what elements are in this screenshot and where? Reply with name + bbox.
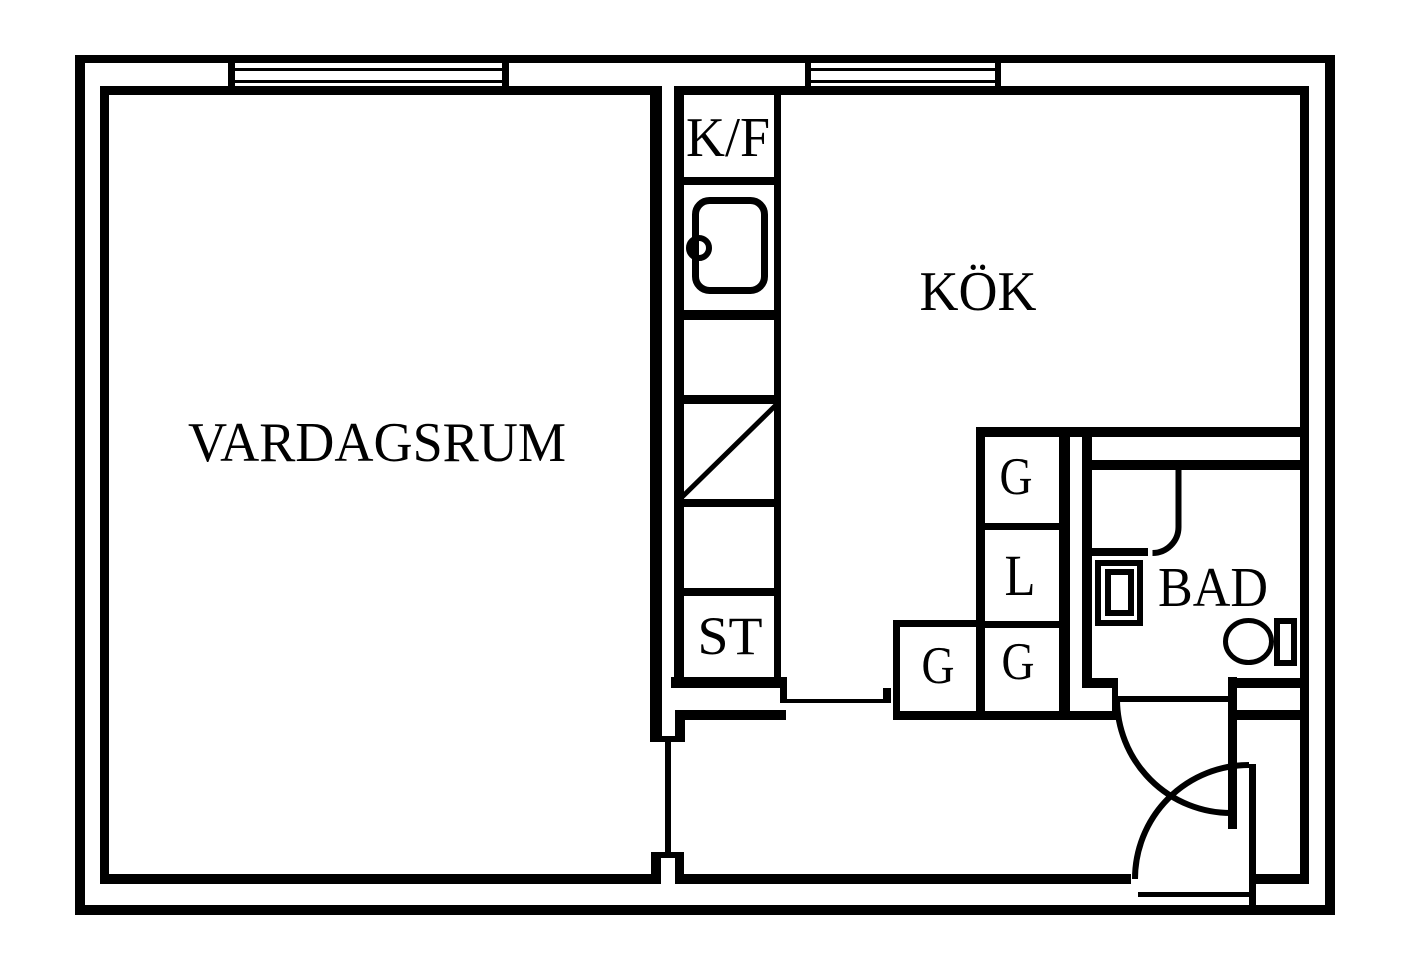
svg-text:G: G xyxy=(1002,633,1035,691)
svg-text:VARDAGSRUM: VARDAGSRUM xyxy=(188,412,566,474)
svg-text:L: L xyxy=(1005,543,1036,608)
svg-text:G: G xyxy=(1000,448,1033,506)
svg-text:KÖK: KÖK xyxy=(920,261,1037,323)
svg-text:ST: ST xyxy=(698,606,763,666)
svg-text:K/F: K/F xyxy=(686,107,770,169)
svg-text:G: G xyxy=(922,637,955,695)
svg-text:BAD: BAD xyxy=(1158,557,1268,619)
